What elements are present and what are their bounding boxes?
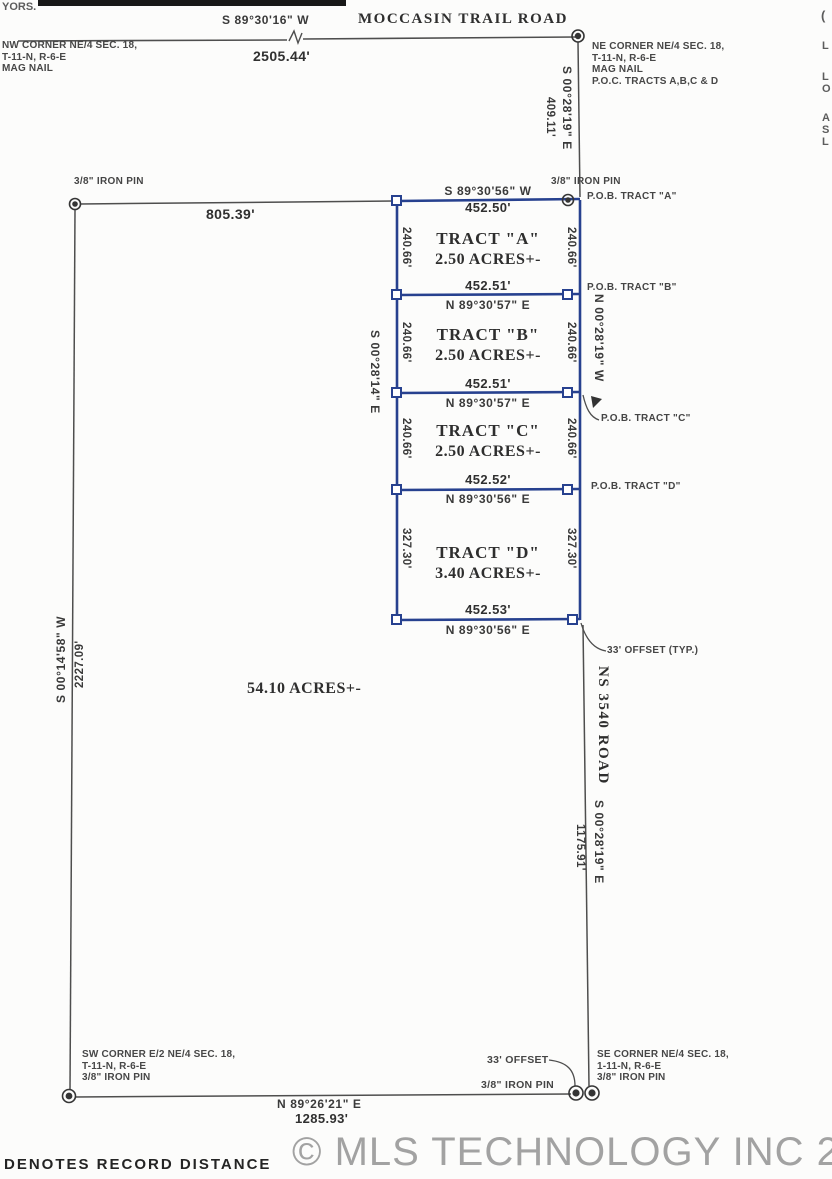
se-note-line: 3/8" IRON PIN	[597, 1072, 729, 1084]
north-line-distance: 805.39'	[206, 206, 255, 222]
record-distance-legend: DENOTES RECORD DISTANCE	[4, 1156, 271, 1173]
sw-note-line: 3/8" IRON PIN	[82, 1072, 235, 1084]
tract-a-south-bearing: N 89°30'57" E	[446, 298, 531, 312]
ne-corner-pin-dot	[576, 34, 581, 39]
tract-a-east-dim: 240.66'	[565, 227, 577, 268]
sw-corner-note: SW CORNER E/2 NE/4 SEC. 18, T-11-N, R-6-…	[82, 1049, 235, 1084]
tract-b-south-bearing: N 89°30'57" E	[446, 396, 531, 410]
tract-d-area: 3.40 ACRES+-	[435, 565, 541, 583]
tract-a-west-dim: 240.66'	[400, 227, 412, 268]
pob-tract-d-label: P.O.B. TRACT "D"	[591, 481, 681, 492]
nw-note-line: NW CORNER NE/4 SEC. 18,	[2, 40, 137, 52]
top-road-line-right	[303, 37, 576, 39]
nw-corner-note: NW CORNER NE/4 SEC. 18, T-11-N, R-6-E MA…	[2, 40, 137, 75]
nw-note-line: T-11-N, R-6-E	[2, 52, 137, 64]
tract-c-east-dim: 240.66'	[565, 418, 577, 459]
tract-west-bearing: S 00°28'14" E	[368, 330, 382, 414]
offset-typ-note: 33' OFFSET (TYP.)	[607, 645, 698, 656]
tract-corner-marker	[563, 290, 572, 299]
redaction-bar	[38, 0, 346, 6]
sw-note-line: T-11-N, R-6-E	[82, 1061, 235, 1073]
tract-b-east-dim: 240.66'	[565, 322, 577, 363]
tract-divider-bc	[397, 392, 580, 393]
mls-watermark: © MLS TECHNOLOGY INC 2026	[292, 1130, 832, 1175]
top-road-distance: 2505.44'	[253, 48, 310, 64]
pob-tract-b-label: P.O.B. TRACT "B"	[587, 282, 677, 293]
east-tie-bearing: S 00°28'19" E	[560, 66, 574, 150]
tract-b-area: 2.50 ACRES+-	[435, 347, 541, 365]
tract-a-area: 2.50 ACRES+-	[435, 251, 541, 269]
scan-fragment-top-left: YORS.	[2, 1, 36, 13]
se-offset-pin-dot	[573, 1090, 579, 1096]
tract-corner-marker	[392, 388, 401, 397]
line-break-symbol	[289, 31, 302, 43]
nw-note-line: MAG NAIL	[2, 63, 137, 75]
scan-fragment-right: L	[822, 71, 829, 83]
tract-east-bearing: N 00°28'19" W	[592, 294, 606, 382]
ne-note-line: MAG NAIL	[592, 64, 724, 76]
tract-corner-marker	[392, 485, 401, 494]
tract-corner-marker	[563, 388, 572, 397]
tract-corner-marker	[568, 615, 577, 624]
tract-divider-cd	[397, 489, 580, 490]
se-corner-pin-dot	[589, 1090, 595, 1096]
nw-iron-pin-dot	[73, 202, 77, 206]
tract-a-south-distance: 452.51'	[465, 278, 511, 293]
west-line-distance: 2227.09'	[74, 640, 86, 688]
parent-parcel-area: 54.10 ACRES+-	[247, 680, 361, 698]
tract-top-distance: 452.50'	[465, 200, 511, 215]
east-tie-line	[578, 42, 580, 197]
tract-divider-ab	[397, 294, 580, 295]
tract-c-area: 2.50 ACRES+-	[435, 443, 541, 461]
scan-fragment-right: A	[822, 112, 830, 124]
tract-c-south-distance: 452.52'	[465, 472, 511, 487]
sw-corner-pin-dot	[66, 1093, 71, 1098]
offset-typ-leader	[581, 623, 606, 651]
ne-corner-note: NE CORNER NE/4 SEC. 18, T-11-N, R-6-E MA…	[592, 41, 724, 87]
east-road-distance: 1175.91'	[574, 824, 586, 871]
pob-tract-c-label: P.O.B. TRACT "C"	[601, 413, 691, 424]
scan-fragment-right: S	[822, 124, 829, 136]
tract-c-west-dim: 240.66'	[400, 418, 412, 459]
tract-d-east-dim: 327.30'	[565, 528, 577, 569]
south-offset-pin-label: 3/8" IRON PIN	[481, 1079, 554, 1091]
scan-fragment-right: L	[822, 136, 829, 148]
ne-note-line: P.O.C. TRACTS A,B,C & D	[592, 76, 724, 88]
se-corner-note: SE CORNER NE/4 SEC. 18, 1-11-N, R-6-E 3/…	[597, 1049, 729, 1084]
south-line-bearing: N 89°26'21" E	[277, 1097, 362, 1111]
tract-d-name: TRACT "D"	[436, 543, 540, 563]
top-road-name: MOCCASIN TRAIL ROAD	[358, 11, 568, 28]
east-tie-distance: 409.11'	[544, 97, 556, 137]
tract-d-south-bearing: N 89°30'56" E	[446, 623, 531, 637]
se-note-line: 1-11-N, R-6-E	[597, 1061, 729, 1073]
top-road-bearing: S 89°30'16" W	[222, 13, 309, 27]
scan-fragment-right: O	[822, 83, 831, 95]
tract-c-name: TRACT "C"	[436, 421, 540, 441]
south-line-distance: 1285.93'	[295, 1111, 348, 1126]
north-line	[80, 201, 394, 204]
pob-a-pin-dot	[566, 198, 570, 202]
bearing-arrow-icon	[591, 396, 602, 408]
tract-corner-marker	[392, 615, 401, 624]
south-offset-note: 33' OFFSET	[487, 1054, 549, 1066]
tract-d-south-distance: 452.53'	[465, 602, 511, 617]
west-line-bearing: S 00°14'58" W	[54, 616, 68, 703]
east-road-name: NS 3540 ROAD	[594, 666, 611, 785]
tract-b-south-distance: 452.51'	[465, 376, 511, 391]
tract-a-name: TRACT "A"	[436, 229, 540, 249]
ne-note-line: T-11-N, R-6-E	[592, 53, 724, 65]
pob-tract-a-label: P.O.B. TRACT "A"	[587, 191, 677, 202]
se-note-line: SE CORNER NE/4 SEC. 18,	[597, 1049, 729, 1061]
tract-corner-marker	[392, 290, 401, 299]
ne-note-line: NE CORNER NE/4 SEC. 18,	[592, 41, 724, 53]
pob-a-pin-label: 3/8" IRON PIN	[551, 176, 621, 187]
tract-b-west-dim: 240.66'	[400, 322, 412, 363]
scan-fragment-right: (	[821, 8, 825, 23]
sw-note-line: SW CORNER E/2 NE/4 SEC. 18,	[82, 1049, 235, 1061]
scan-fragment-right: L	[822, 40, 829, 52]
tract-corner-marker	[563, 485, 572, 494]
tract-corner-marker	[392, 196, 401, 205]
nw-iron-pin-label: 3/8" IRON PIN	[74, 176, 144, 187]
tract-bottom-edge	[397, 619, 580, 620]
tract-top-bearing: S 89°30'56" W	[444, 184, 531, 198]
tract-d-west-dim: 327.30'	[400, 528, 412, 569]
tract-c-south-bearing: N 89°30'56" E	[446, 492, 531, 506]
east-road-bearing: S 00°28'19" E	[592, 800, 606, 884]
survey-plat-page: YORS. ( L L O A S L S 89°30'16" W MOCCAS…	[0, 0, 832, 1179]
tract-b-name: TRACT "B"	[437, 325, 540, 345]
